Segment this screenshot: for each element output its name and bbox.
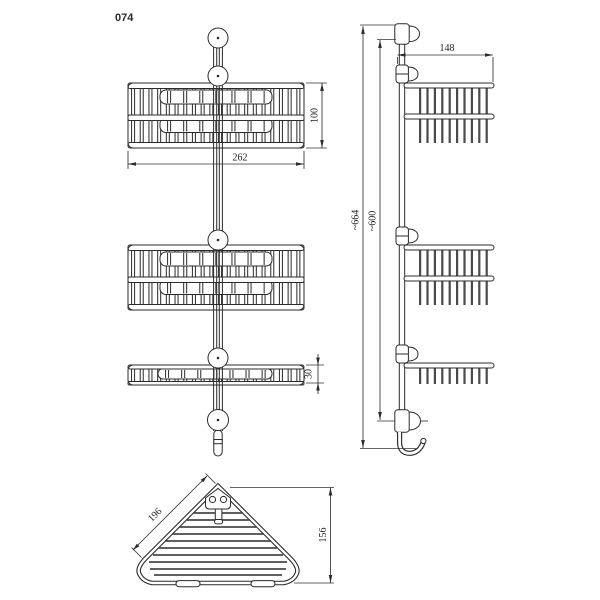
front-basket-top bbox=[128, 83, 304, 148]
model-number-label: 074 bbox=[115, 12, 134, 24]
front-tray-height-dim-label: 30 bbox=[304, 369, 315, 379]
side-rail-height-dim-label: ~600 bbox=[368, 211, 379, 231]
mount-screw-hole-right bbox=[220, 496, 226, 502]
dimension-rail-height-600: ~600 bbox=[368, 40, 397, 422]
front-basket-middle bbox=[128, 245, 304, 310]
side-tray-profile bbox=[404, 363, 494, 376]
side-depth-dim-label: 148 bbox=[440, 43, 455, 54]
side-view: 148 ~664 ~600 bbox=[351, 24, 495, 454]
side-hook bbox=[400, 432, 426, 453]
front-view: 262 100 30 bbox=[128, 28, 327, 456]
mount-screw-hole-left bbox=[209, 496, 215, 502]
front-width-dim-label: 262 bbox=[233, 153, 248, 164]
mount-stem-tip bbox=[215, 520, 223, 524]
side-overall-height-dim-label: ~664 bbox=[351, 210, 362, 230]
mount-stem bbox=[215, 509, 222, 521]
top-depth-dim-label: 156 bbox=[318, 528, 329, 543]
dimension-tray-height-30: 30 bbox=[304, 354, 325, 394]
top-view: 196 156 bbox=[132, 474, 335, 587]
shower-caddy-drawing: 074 bbox=[0, 0, 600, 600]
technical-drawing-sheet: 074 bbox=[0, 0, 600, 600]
front-bottom-end-cap bbox=[214, 430, 222, 456]
side-basket-middle-profile bbox=[404, 245, 494, 281]
side-top-wall-bracket bbox=[395, 24, 420, 44]
dimension-edge-196: 196 bbox=[132, 474, 216, 558]
front-basket-height-dim-label: 100 bbox=[310, 108, 321, 123]
side-bottom-wall-bracket bbox=[395, 410, 428, 432]
dimension-width-262: 262 bbox=[128, 151, 304, 169]
side-basket-top-profile bbox=[404, 83, 494, 119]
hook-tip bbox=[421, 438, 426, 443]
dimension-basket-height-100: 100 bbox=[306, 83, 327, 148]
